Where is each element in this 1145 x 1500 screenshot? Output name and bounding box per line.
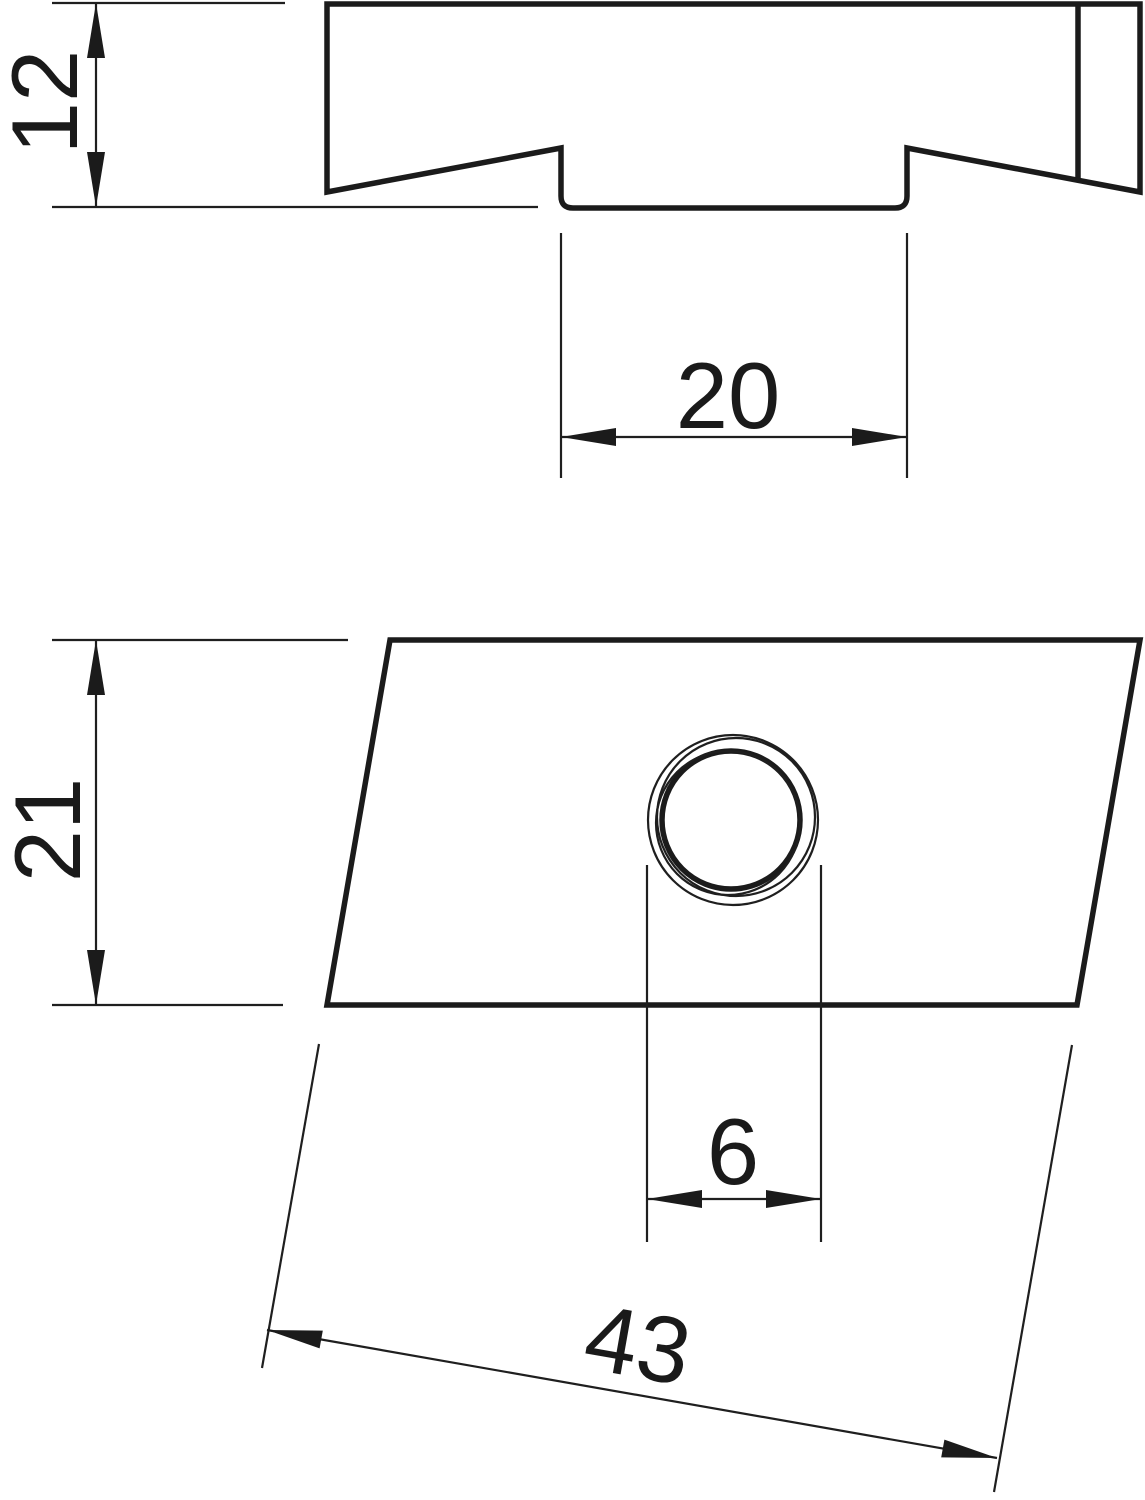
arrowhead-down — [87, 152, 105, 207]
dimension-plate-width-21: 21 — [0, 640, 348, 1005]
dim-label-groove-width: 20 — [676, 343, 781, 448]
plan-view: 21 6 43 — [0, 640, 1140, 1492]
plate-outline — [327, 640, 1140, 1005]
arrowhead-up — [87, 640, 105, 695]
dimension-thread-6: 6 — [647, 865, 821, 1242]
dim-label-thread: 6 — [707, 1099, 759, 1204]
side-profile-view: 12 20 — [0, 3, 1140, 478]
technical-drawing-canvas: 12 20 — [0, 0, 1145, 1500]
arrowhead-left — [647, 1190, 702, 1208]
arrowhead-left — [561, 428, 616, 446]
extension-line — [994, 1045, 1072, 1492]
hole-circle-sketch — [656, 751, 800, 895]
dim-label-plate-length: 43 — [577, 1284, 698, 1406]
extension-line — [262, 1044, 319, 1368]
arrowhead-down — [87, 950, 105, 1005]
dimension-plate-length-43: 43 — [262, 1044, 1072, 1492]
arrowhead-right — [941, 1440, 997, 1458]
side-profile-outline — [327, 4, 1140, 208]
dimension-height-12: 12 — [0, 3, 538, 207]
arrowhead-right — [852, 428, 907, 446]
dimension-groove-width-20: 20 — [561, 233, 907, 478]
thread-outer-circle-sketch — [657, 738, 815, 896]
dim-label-plate-width: 21 — [0, 778, 100, 883]
dim-label-height: 12 — [0, 50, 97, 155]
threaded-hole — [648, 735, 818, 905]
arrowhead-right — [766, 1190, 821, 1208]
arrowhead-left — [267, 1330, 323, 1348]
slide-nut-dimension-drawing: 12 20 — [0, 0, 1145, 1500]
